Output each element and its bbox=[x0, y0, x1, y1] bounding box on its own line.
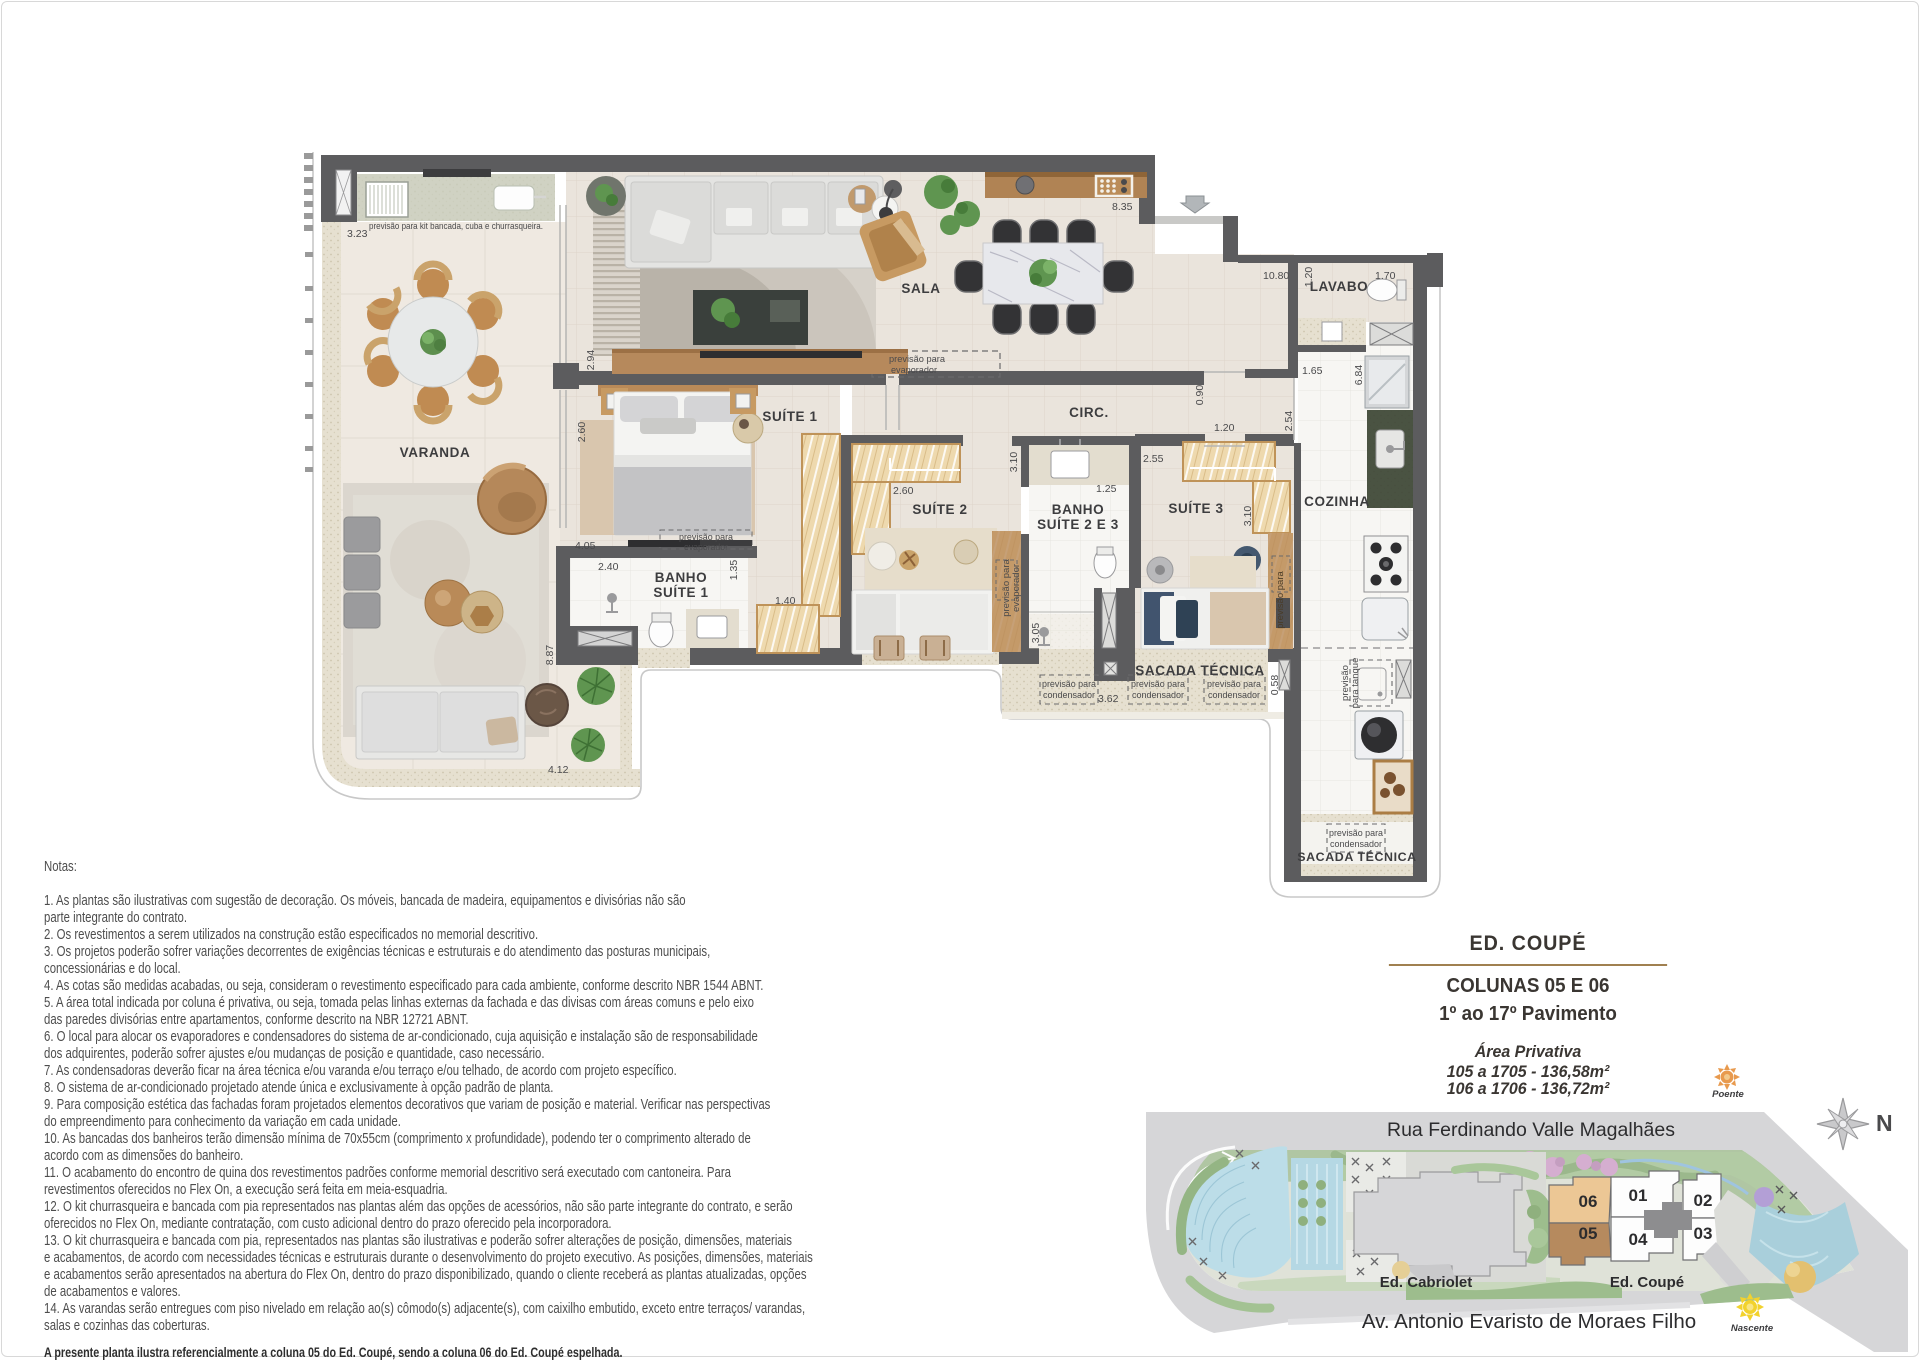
svg-text:previsão para kit bancada, cub: previsão para kit bancada, cuba e churra… bbox=[369, 221, 543, 232]
svg-text:1.40: 1.40 bbox=[775, 595, 796, 607]
svg-text:03: 03 bbox=[1694, 1224, 1713, 1243]
svg-text:condensador: condensador bbox=[1043, 690, 1095, 701]
svg-text:1.20: 1.20 bbox=[1303, 267, 1315, 288]
svg-text:evaporador: evaporador bbox=[891, 365, 937, 376]
svg-text:previsão para: previsão para bbox=[1207, 679, 1262, 690]
svg-text:condensador: condensador bbox=[1330, 839, 1382, 850]
svg-text:3.10: 3.10 bbox=[1008, 452, 1020, 473]
svg-text:VARANDA: VARANDA bbox=[400, 445, 471, 460]
svg-text:2.94: 2.94 bbox=[585, 350, 597, 371]
svg-text:3.05: 3.05 bbox=[1030, 623, 1042, 644]
svg-text:8.87: 8.87 bbox=[544, 645, 556, 666]
svg-text:3.10: 3.10 bbox=[1242, 506, 1254, 527]
svg-text:CIRC.: CIRC. bbox=[1069, 405, 1109, 420]
svg-text:evaporador: evaporador bbox=[1011, 564, 1022, 612]
svg-text:4.12: 4.12 bbox=[548, 764, 569, 776]
svg-text:05: 05 bbox=[1579, 1224, 1598, 1243]
svg-text:6.84: 6.84 bbox=[1353, 365, 1365, 386]
svg-text:previsão para: previsão para bbox=[1329, 828, 1384, 839]
svg-text:0.58: 0.58 bbox=[1269, 675, 1281, 696]
svg-text:COZINHA: COZINHA bbox=[1304, 494, 1370, 509]
svg-text:Ed. Coupé: Ed. Coupé bbox=[1610, 1274, 1684, 1291]
svg-text:1.35: 1.35 bbox=[728, 560, 740, 581]
svg-text:2.54: 2.54 bbox=[1283, 411, 1295, 432]
svg-text:06: 06 bbox=[1579, 1192, 1598, 1211]
svg-text:SUÍTE 3: SUÍTE 3 bbox=[1168, 501, 1223, 516]
svg-text:previsão para: previsão para bbox=[1275, 571, 1286, 629]
svg-text:SUÍTE 1: SUÍTE 1 bbox=[762, 409, 817, 424]
svg-text:SACADA TÉCNICA: SACADA TÉCNICA bbox=[1135, 663, 1264, 678]
svg-text:BANHO: BANHO bbox=[1052, 502, 1105, 517]
svg-text:SACADA TÉCNICA: SACADA TÉCNICA bbox=[1297, 849, 1416, 864]
svg-text:0.90: 0.90 bbox=[1194, 385, 1206, 406]
svg-text:3.62: 3.62 bbox=[1098, 693, 1119, 705]
svg-text:2.60: 2.60 bbox=[893, 485, 914, 497]
svg-text:SUÍTE 2: SUÍTE 2 bbox=[912, 502, 967, 517]
svg-text:condensador: condensador bbox=[1208, 690, 1260, 701]
svg-text:Rua Ferdinando Valle Magalhães: Rua Ferdinando Valle Magalhães bbox=[1387, 1119, 1675, 1141]
svg-text:1.20: 1.20 bbox=[1214, 422, 1235, 434]
svg-text:previsão para: previsão para bbox=[1042, 679, 1097, 690]
svg-text:SUÍTE 1: SUÍTE 1 bbox=[653, 585, 708, 600]
svg-text:SUÍTE 2 E 3: SUÍTE 2 E 3 bbox=[1037, 517, 1119, 532]
svg-text:previsão para: previsão para bbox=[889, 354, 946, 365]
svg-text:2.40: 2.40 bbox=[598, 561, 619, 573]
svg-text:10.80: 10.80 bbox=[1263, 270, 1289, 282]
svg-text:Nascente: Nascente bbox=[1731, 1323, 1774, 1334]
svg-text:para tanque: para tanque bbox=[1350, 658, 1361, 709]
svg-text:1.70: 1.70 bbox=[1375, 270, 1396, 282]
svg-text:02: 02 bbox=[1694, 1191, 1713, 1210]
svg-text:04: 04 bbox=[1629, 1230, 1648, 1249]
svg-text:1.65: 1.65 bbox=[1302, 365, 1323, 377]
svg-text:2.60: 2.60 bbox=[576, 422, 588, 443]
svg-text:LAVABO: LAVABO bbox=[1310, 279, 1369, 294]
svg-text:evaporador: evaporador bbox=[684, 542, 728, 553]
svg-text:Ed. Cabriolet: Ed. Cabriolet bbox=[1380, 1274, 1473, 1291]
svg-text:N: N bbox=[1876, 1110, 1893, 1136]
svg-text:01: 01 bbox=[1629, 1186, 1648, 1205]
svg-text:condensador: condensador bbox=[1132, 690, 1184, 701]
svg-text:Av. Antonio Evaristo de Moraes: Av. Antonio Evaristo de Moraes Filho bbox=[1362, 1310, 1696, 1333]
svg-text:SALA: SALA bbox=[901, 281, 940, 296]
svg-text:3.23: 3.23 bbox=[347, 228, 368, 240]
svg-text:2.55: 2.55 bbox=[1143, 453, 1164, 465]
svg-text:8.35: 8.35 bbox=[1112, 201, 1133, 213]
svg-text:BANHO: BANHO bbox=[655, 570, 708, 585]
svg-text:1.25: 1.25 bbox=[1096, 483, 1117, 495]
svg-text:4.05: 4.05 bbox=[575, 540, 596, 552]
svg-text:previsão para: previsão para bbox=[1131, 679, 1186, 690]
svg-text:Poente: Poente bbox=[1712, 1089, 1744, 1100]
